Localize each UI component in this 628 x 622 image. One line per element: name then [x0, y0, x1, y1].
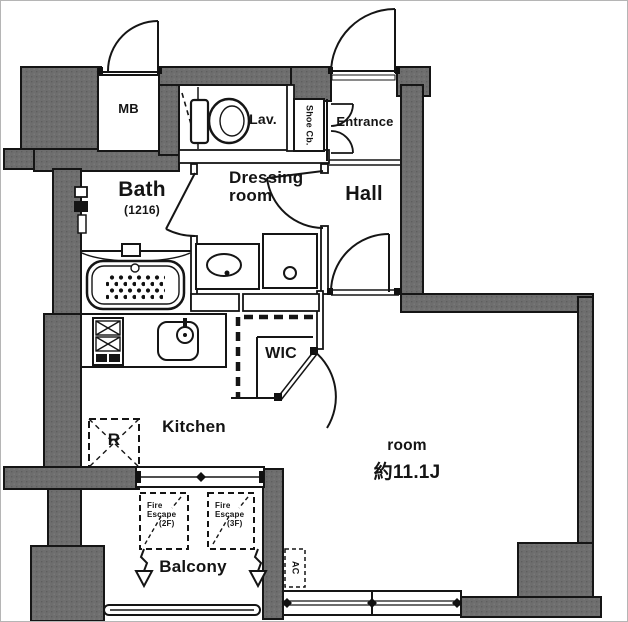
fire3-line3: (3F): [215, 519, 257, 528]
balcony-railing: [104, 605, 260, 615]
hall-label: Hall: [331, 184, 397, 205]
sink-icon: [158, 318, 198, 360]
floor-plan-drawing: [1, 1, 628, 622]
kitchen-balcony-window: [136, 467, 264, 487]
washbasin-icon: [196, 244, 259, 289]
bath-label: Bath: [96, 179, 188, 201]
floor-plan: MB Lav. Shoe Cb. Entrance Bath (1216) Dr…: [0, 0, 628, 622]
bath-size-label: (1216): [96, 204, 188, 217]
dressing-room-label: Dressing room: [229, 169, 321, 205]
hall-door: [331, 234, 389, 292]
refrigerator-label: R: [90, 431, 138, 449]
room-window: [282, 591, 462, 615]
fire-escape-3f-label: Fire Escape (3F): [210, 501, 257, 529]
mb-door: [108, 21, 158, 71]
washing-machine-icon: [263, 234, 317, 288]
bathtub-icon: [81, 244, 191, 309]
wic-label: WIC: [257, 346, 305, 363]
fire3-line2: Escape: [215, 510, 257, 519]
fire3-line1: Fire: [215, 501, 257, 510]
fire2-line1: Fire: [147, 501, 191, 510]
shoe-cabinet-label: Shoe Cb.: [295, 102, 323, 148]
entrance-door: [331, 9, 395, 73]
stove-icon: [93, 318, 123, 365]
kitchen-label: Kitchen: [157, 418, 231, 436]
room-size-label: 約11.1J: [359, 463, 455, 483]
entrance-label: Entrance: [331, 115, 399, 129]
lav-label: Lav.: [239, 112, 287, 127]
dressing-line1: Dressing: [229, 168, 303, 187]
fire2-line3: (2F): [147, 519, 191, 528]
fire2-line2: Escape: [147, 510, 191, 519]
dressing-line2: room: [229, 186, 272, 205]
ac-label: AC: [285, 551, 305, 585]
mb-label: MB: [98, 102, 159, 116]
room-label: room: [369, 438, 445, 454]
balcony-label: Balcony: [139, 558, 247, 576]
fire-escape-2f-label: Fire Escape (2F): [142, 501, 191, 529]
kitchen-counter: [81, 314, 226, 367]
